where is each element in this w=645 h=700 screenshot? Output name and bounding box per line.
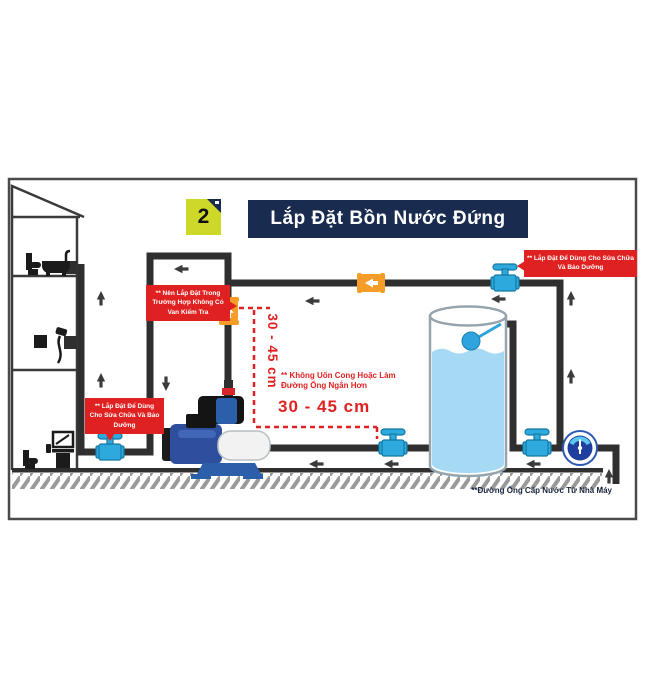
check-valve-bypass — [357, 273, 385, 293]
step-badge: 2 — [186, 199, 221, 235]
washer-sink-icon — [52, 432, 74, 468]
pump-pressure-tank — [218, 431, 270, 460]
callout-check-valve: ** Nên Lắp Đặt Trong Trường Hợp Không Có… — [146, 285, 230, 321]
toilet-icon — [26, 253, 41, 275]
gate-valve-tank-inlet — [523, 429, 551, 456]
float-ball — [462, 332, 480, 350]
installation-diagram: 2 Lắp Đặt Bồn Nước Đứng ** Nên Lắp Đặt T… — [0, 0, 645, 700]
house-outline — [12, 186, 84, 470]
storage-tank — [430, 307, 506, 477]
ground-line — [12, 468, 603, 473]
distance-label-vertical: 30 - 45 cm — [267, 305, 281, 397]
pipe-rule-note: ** Không Uốn Cong Hoặc Làm Đường Ống Ngắ… — [281, 371, 409, 392]
callout-service-valve-left: ** Lắp Đặt Để Dùng Cho Sửa Chữa Và Bảo D… — [85, 398, 164, 434]
gate-valve-tank-outlet — [379, 429, 407, 456]
badge-corner-icon — [215, 201, 219, 204]
toilet-icon-2 — [23, 450, 38, 469]
water-meter — [563, 431, 597, 465]
bathtub-icon — [42, 251, 70, 276]
pump-outlet-fitting — [222, 388, 235, 395]
fixtures-top-floor — [26, 251, 70, 276]
gate-valve-bypass — [491, 264, 519, 291]
page-title: Lắp Đặt Bồn Nước Đứng — [270, 207, 505, 232]
diagram-canvas — [0, 0, 645, 700]
fixtures-ground-floor — [23, 432, 74, 469]
supply-line-note: **Đường Ống Cấp Nước Từ Nhà Máy — [450, 486, 612, 496]
fixtures-middle-floor — [34, 327, 68, 363]
tank-water — [432, 349, 504, 474]
branch-connector-floor2 — [64, 336, 77, 349]
title-banner: Lắp Đặt Bồn Nước Đứng — [248, 200, 528, 238]
wall-box-icon — [34, 335, 47, 348]
distance-label-horizontal: 30 - 45 cm — [278, 396, 370, 418]
callout-service-valve-right: ** Lắp Đặt Để Dùng Cho Sửa Chữa Và Bảo D… — [524, 250, 637, 277]
bottle-icon — [46, 444, 51, 453]
